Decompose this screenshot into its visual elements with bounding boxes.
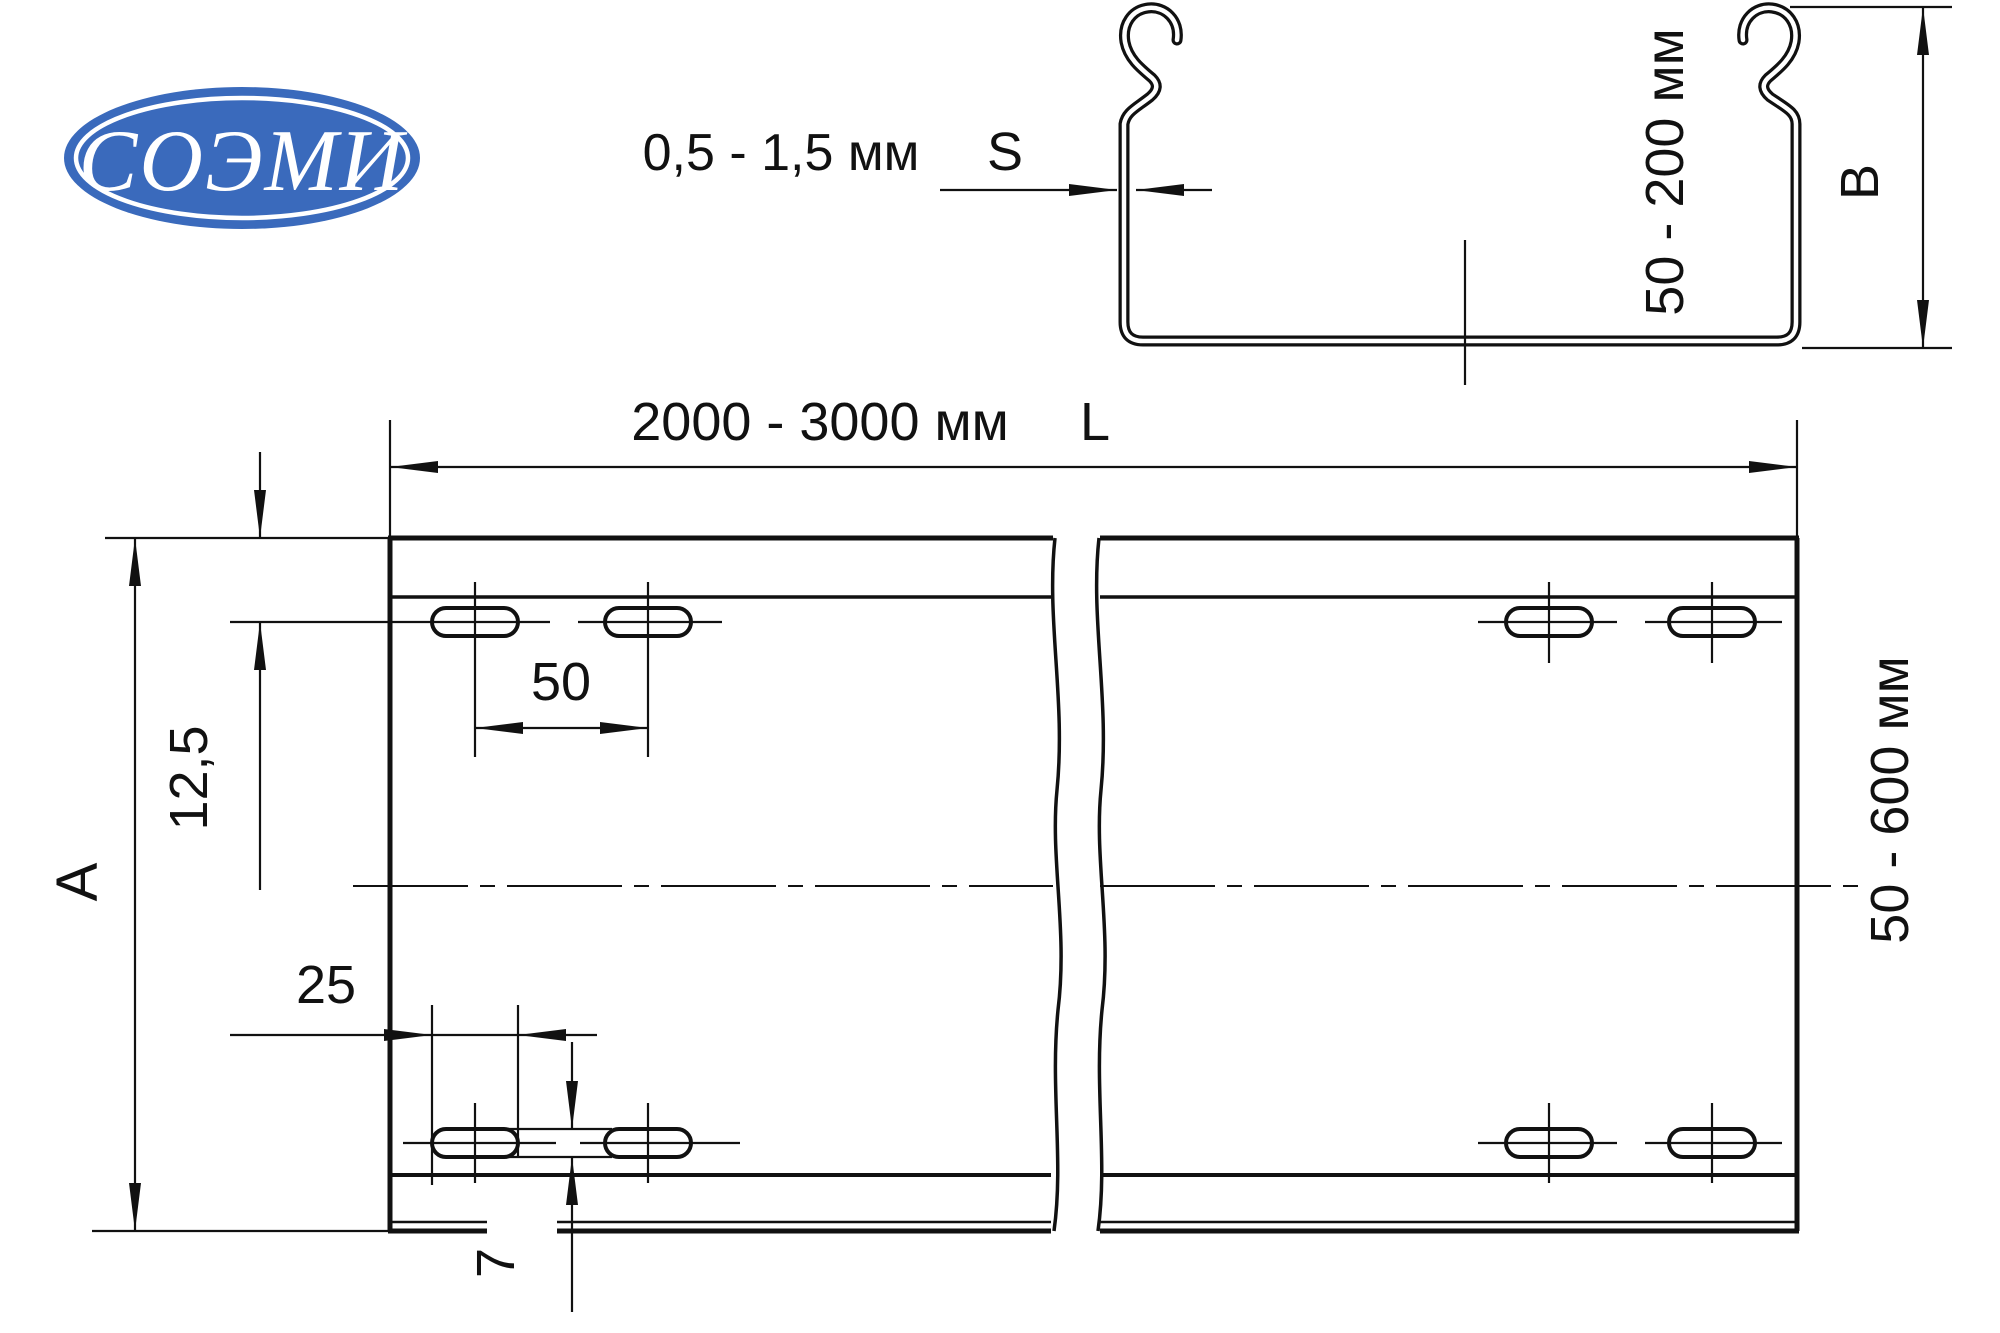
slot-length-label: 25 [296, 955, 356, 1015]
edge-offset-label: 12,5 [159, 725, 219, 830]
width-range-label: 50 - 600 мм [1860, 656, 1920, 943]
section-height-range-label: 50 - 200 мм [1635, 28, 1695, 315]
section-height-symbol-label: B [1830, 164, 1890, 200]
length-symbol-label: L [1080, 392, 1110, 452]
thickness-range-label: 0,5 - 1,5 мм [643, 124, 920, 182]
logo-text: СОЭМИ [79, 113, 408, 210]
logo: СОЭМИ [64, 87, 420, 229]
thickness-symbol-label: S [987, 122, 1023, 182]
break-wavy-line-right [1097, 538, 1105, 1231]
section-profile-outline [1124, 8, 1796, 341]
section-profile-core [1124, 8, 1796, 341]
tray-technical-drawing: СОЭМИ 0,5 - 1,5 мм S 50 - 200 мм B [0, 0, 2000, 1333]
plan-view: 2000 - 3000 мм L A 50 - 600 мм 12,5 50 2… [45, 392, 1920, 1312]
slot-centerlines [230, 622, 1782, 1143]
width-symbol-label: A [45, 862, 110, 901]
break-wavy-line-left [1053, 538, 1061, 1231]
cross-section-view: 0,5 - 1,5 мм S 50 - 200 мм B [643, 7, 1952, 385]
slot-pitch-label: 50 [531, 652, 591, 712]
drawing-canvas: СОЭМИ 0,5 - 1,5 мм S 50 - 200 мм B [0, 0, 2000, 1333]
length-range-label: 2000 - 3000 мм [631, 392, 1009, 452]
slot-tick-marks [475, 582, 1712, 1183]
slot-holes [432, 608, 1755, 1157]
slot-width-label: 7 [466, 1248, 526, 1278]
